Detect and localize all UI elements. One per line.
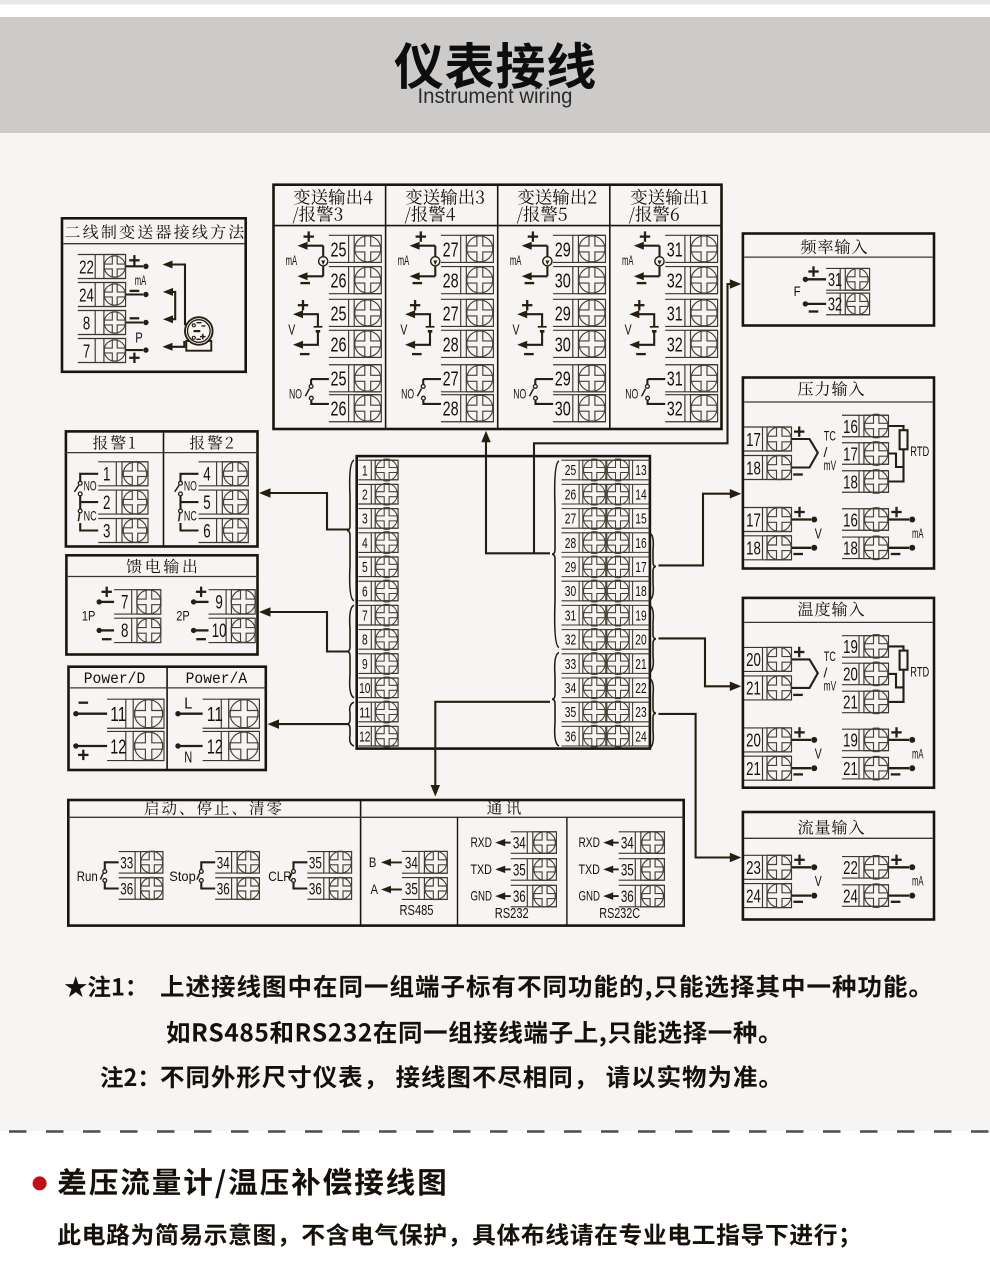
svg-text:18: 18 bbox=[843, 538, 858, 559]
svg-text:28: 28 bbox=[443, 269, 459, 292]
svg-text:NO: NO bbox=[184, 478, 197, 494]
svg-text:8: 8 bbox=[83, 312, 90, 333]
svg-text:mA: mA bbox=[912, 745, 924, 761]
svg-text:25: 25 bbox=[331, 302, 347, 325]
svg-text:25: 25 bbox=[565, 463, 576, 479]
svg-text:11: 11 bbox=[207, 703, 223, 726]
svg-text:L: L bbox=[184, 695, 192, 712]
svg-text:27: 27 bbox=[565, 512, 576, 528]
svg-text:20: 20 bbox=[746, 649, 761, 670]
svg-text:36: 36 bbox=[120, 879, 133, 898]
svg-text:29: 29 bbox=[555, 302, 571, 325]
svg-text:10: 10 bbox=[212, 621, 227, 642]
svg-text:V: V bbox=[815, 874, 822, 890]
svg-text:4: 4 bbox=[362, 536, 368, 552]
svg-text:mA: mA bbox=[286, 252, 298, 268]
svg-text:30: 30 bbox=[555, 333, 571, 356]
svg-text:22: 22 bbox=[635, 681, 646, 697]
svg-text:NC: NC bbox=[184, 507, 197, 523]
svg-text:23: 23 bbox=[635, 705, 646, 721]
svg-text:26: 26 bbox=[331, 333, 347, 356]
svg-text:21: 21 bbox=[746, 678, 761, 699]
svg-text:34: 34 bbox=[621, 834, 634, 853]
svg-text:4: 4 bbox=[203, 465, 211, 486]
svg-text:2: 2 bbox=[362, 487, 368, 503]
svg-text:RS485: RS485 bbox=[400, 903, 434, 919]
svg-text:GND: GND bbox=[470, 888, 492, 904]
svg-text:33: 33 bbox=[120, 853, 133, 872]
svg-text:V: V bbox=[400, 322, 407, 338]
svg-text:36: 36 bbox=[309, 879, 322, 898]
svg-text:17: 17 bbox=[746, 429, 761, 450]
svg-text:8: 8 bbox=[362, 633, 368, 649]
svg-text:Power/D: Power/D bbox=[84, 670, 146, 688]
svg-text:31: 31 bbox=[667, 368, 683, 391]
svg-text:20: 20 bbox=[746, 730, 761, 751]
svg-text:36: 36 bbox=[621, 887, 634, 906]
svg-text:1P: 1P bbox=[82, 607, 96, 623]
svg-text:14: 14 bbox=[635, 487, 646, 503]
svg-text:B: B bbox=[369, 854, 377, 870]
svg-text:31: 31 bbox=[667, 238, 683, 261]
svg-text:GND: GND bbox=[578, 888, 600, 904]
svg-text:30: 30 bbox=[565, 584, 576, 600]
svg-text:21: 21 bbox=[746, 758, 761, 779]
svg-text:12: 12 bbox=[207, 735, 223, 758]
svg-text:TXD: TXD bbox=[578, 861, 600, 877]
svg-text:21: 21 bbox=[843, 692, 858, 713]
svg-text:5: 5 bbox=[362, 560, 368, 576]
svg-text:15: 15 bbox=[635, 512, 646, 528]
svg-text:TXD: TXD bbox=[470, 861, 492, 877]
svg-text:31: 31 bbox=[667, 302, 683, 325]
svg-text:28: 28 bbox=[565, 536, 576, 552]
svg-text:13: 13 bbox=[635, 463, 646, 479]
svg-text:NC: NC bbox=[84, 507, 97, 523]
svg-text:25: 25 bbox=[331, 238, 347, 261]
svg-text:20: 20 bbox=[843, 664, 858, 685]
svg-text:2: 2 bbox=[103, 493, 110, 514]
svg-text:11: 11 bbox=[359, 705, 370, 721]
svg-text:Run: Run bbox=[77, 868, 98, 884]
svg-text:P: P bbox=[135, 330, 143, 347]
svg-text:7: 7 bbox=[83, 340, 90, 361]
svg-text:2P: 2P bbox=[176, 607, 190, 623]
svg-text:NO: NO bbox=[513, 386, 526, 402]
svg-text:36: 36 bbox=[565, 729, 576, 745]
svg-text:19: 19 bbox=[843, 730, 858, 751]
svg-text:9: 9 bbox=[215, 593, 222, 614]
svg-text:NO: NO bbox=[625, 386, 638, 402]
svg-text:6: 6 bbox=[362, 584, 368, 600]
svg-text:18: 18 bbox=[843, 471, 858, 492]
svg-text:22: 22 bbox=[79, 256, 94, 277]
svg-text:30: 30 bbox=[555, 269, 571, 292]
svg-text:28: 28 bbox=[443, 398, 459, 421]
svg-text:F: F bbox=[794, 283, 801, 299]
svg-text:RXD: RXD bbox=[578, 834, 600, 850]
svg-text:25: 25 bbox=[331, 368, 347, 391]
svg-text:35: 35 bbox=[513, 860, 526, 879]
svg-text:19: 19 bbox=[635, 608, 646, 624]
svg-text:NO: NO bbox=[84, 478, 97, 494]
svg-text:3: 3 bbox=[103, 521, 110, 542]
svg-text:7: 7 bbox=[121, 593, 128, 614]
svg-text:16: 16 bbox=[635, 536, 646, 552]
svg-text:26: 26 bbox=[331, 398, 347, 421]
svg-text:35: 35 bbox=[621, 860, 634, 879]
svg-text:17: 17 bbox=[746, 509, 761, 530]
svg-text:Stop: Stop bbox=[169, 868, 196, 884]
svg-text:CLR: CLR bbox=[268, 868, 292, 884]
svg-text:5: 5 bbox=[203, 493, 210, 514]
svg-text:34: 34 bbox=[217, 853, 230, 872]
svg-text:RTD: RTD bbox=[910, 663, 929, 679]
svg-text:mV: mV bbox=[824, 457, 837, 473]
svg-text:17: 17 bbox=[843, 443, 858, 464]
svg-text:33: 33 bbox=[565, 657, 576, 673]
svg-text:mA: mA bbox=[622, 252, 634, 268]
svg-text:mA: mA bbox=[912, 873, 924, 889]
svg-text:N: N bbox=[184, 749, 192, 766]
svg-text:10: 10 bbox=[359, 681, 370, 697]
svg-text:31: 31 bbox=[565, 608, 576, 624]
svg-text:27: 27 bbox=[443, 238, 459, 261]
svg-text:30: 30 bbox=[555, 398, 571, 421]
svg-text:V: V bbox=[288, 322, 295, 338]
svg-text:V: V bbox=[815, 526, 822, 542]
svg-text:32: 32 bbox=[667, 398, 683, 421]
svg-text:6: 6 bbox=[203, 521, 210, 542]
svg-text:32: 32 bbox=[667, 269, 683, 292]
svg-text:mA: mA bbox=[398, 252, 410, 268]
svg-text:34: 34 bbox=[405, 853, 418, 872]
svg-text:32: 32 bbox=[565, 633, 576, 649]
svg-text:mA: mA bbox=[135, 272, 147, 288]
svg-text:TC: TC bbox=[824, 648, 836, 664]
svg-text:NO: NO bbox=[289, 386, 302, 402]
svg-text:24: 24 bbox=[635, 729, 646, 745]
svg-text:9: 9 bbox=[362, 657, 368, 673]
svg-text:18: 18 bbox=[746, 457, 761, 478]
svg-text:32: 32 bbox=[667, 333, 683, 356]
svg-text:A: A bbox=[370, 881, 378, 897]
svg-text:12: 12 bbox=[359, 729, 370, 745]
svg-text:27: 27 bbox=[443, 302, 459, 325]
svg-text:35: 35 bbox=[565, 705, 576, 721]
svg-text:RS232C: RS232C bbox=[599, 906, 640, 922]
svg-text:20: 20 bbox=[635, 633, 646, 649]
svg-text:18: 18 bbox=[746, 538, 761, 559]
svg-text:34: 34 bbox=[565, 681, 576, 697]
svg-text:V: V bbox=[625, 322, 632, 338]
svg-text:22: 22 bbox=[843, 857, 858, 878]
svg-text:17: 17 bbox=[635, 560, 646, 576]
svg-text:19: 19 bbox=[843, 636, 858, 657]
svg-text:23: 23 bbox=[746, 857, 761, 878]
svg-text:7: 7 bbox=[362, 608, 368, 624]
svg-text:1: 1 bbox=[362, 463, 368, 479]
svg-text:1: 1 bbox=[103, 465, 110, 486]
svg-text:34: 34 bbox=[513, 834, 526, 853]
svg-text:35: 35 bbox=[309, 853, 322, 872]
svg-text:16: 16 bbox=[843, 416, 858, 437]
svg-text:24: 24 bbox=[79, 284, 94, 305]
svg-text:Instrument wiring: Instrument wiring bbox=[418, 84, 573, 108]
svg-text:24: 24 bbox=[843, 885, 858, 906]
svg-text:18: 18 bbox=[635, 584, 646, 600]
svg-text:36: 36 bbox=[217, 879, 230, 898]
svg-text:12: 12 bbox=[110, 735, 126, 758]
svg-text:3: 3 bbox=[362, 512, 368, 528]
svg-text:RS232: RS232 bbox=[495, 906, 529, 922]
svg-text:35: 35 bbox=[405, 879, 418, 898]
svg-text:32: 32 bbox=[828, 293, 842, 314]
svg-text:21: 21 bbox=[843, 758, 858, 779]
svg-text:RTD: RTD bbox=[910, 443, 929, 459]
svg-text:31: 31 bbox=[828, 269, 842, 290]
svg-text:26: 26 bbox=[565, 487, 576, 503]
svg-text:26: 26 bbox=[331, 269, 347, 292]
svg-text:27: 27 bbox=[443, 368, 459, 391]
svg-text:mA: mA bbox=[510, 252, 522, 268]
svg-text:29: 29 bbox=[555, 368, 571, 391]
svg-text:mA: mA bbox=[912, 525, 924, 541]
svg-text:24: 24 bbox=[746, 885, 761, 906]
svg-text:21: 21 bbox=[635, 657, 646, 673]
svg-text:16: 16 bbox=[843, 509, 858, 530]
svg-text:8: 8 bbox=[121, 621, 128, 642]
svg-text:V: V bbox=[815, 747, 822, 763]
svg-text:TC: TC bbox=[824, 428, 836, 444]
svg-text:28: 28 bbox=[443, 333, 459, 356]
svg-text:NO: NO bbox=[401, 386, 414, 402]
svg-text:V: V bbox=[513, 322, 520, 338]
svg-text:29: 29 bbox=[555, 238, 571, 261]
svg-text:RXD: RXD bbox=[470, 834, 492, 850]
svg-text:mV: mV bbox=[824, 677, 837, 693]
svg-text:Power/A: Power/A bbox=[186, 670, 248, 688]
svg-text:36: 36 bbox=[513, 887, 526, 906]
svg-text:29: 29 bbox=[565, 560, 576, 576]
svg-text:11: 11 bbox=[110, 703, 126, 726]
